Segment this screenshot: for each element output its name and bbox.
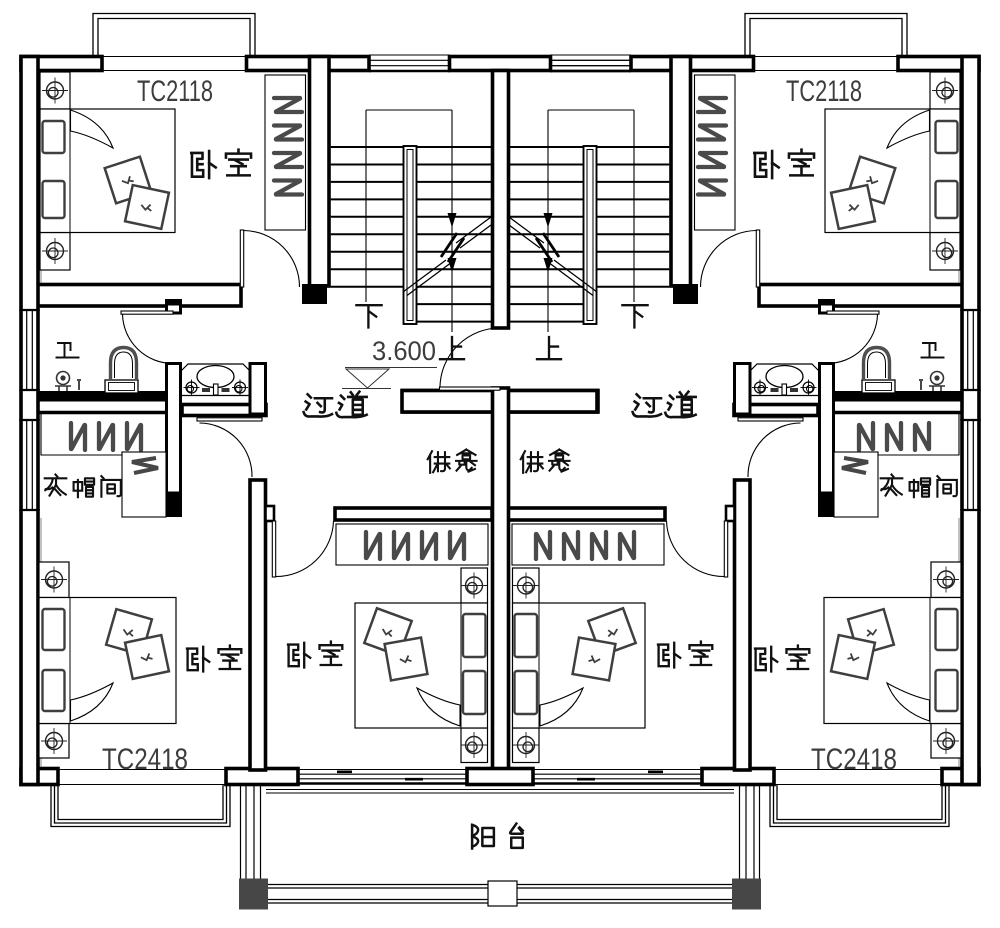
svg-text:TC2118: TC2118 — [137, 75, 213, 108]
svg-text:TC2118: TC2118 — [786, 75, 862, 108]
svg-text:TC2418: TC2418 — [102, 743, 188, 776]
svg-text:3.600: 3.600 — [372, 336, 436, 366]
svg-text:TC2418: TC2418 — [811, 743, 897, 776]
